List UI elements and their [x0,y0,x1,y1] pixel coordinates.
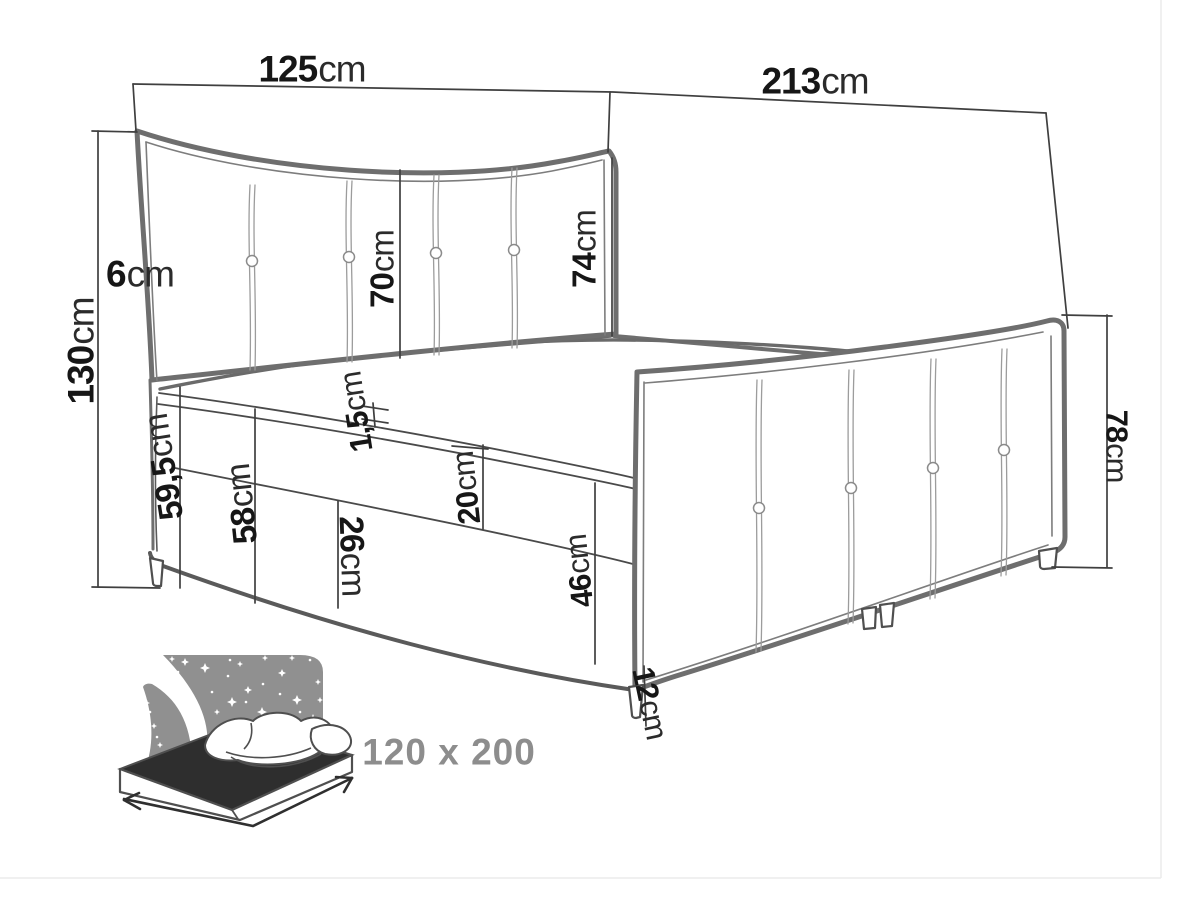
dim-label-bed-length: 213cm [761,63,868,100]
dim-value: 58 [226,506,264,545]
dim-unit: cm [335,552,370,596]
dim-label-headboard-height: 130cm [63,297,100,404]
dim-value: 1,5 [341,410,378,454]
dim-unit: cm [318,51,365,88]
dim-unit: cm [1102,443,1133,482]
dim-label-headboard-inner: 74cm [568,210,601,288]
product-image: 125cm 213cm 130cm 6cm 70cm 74cm 1,5cm 59… [0,0,1198,899]
dim-label-base-side-height: 58cm [221,462,263,545]
dim-unit: cm [634,697,672,742]
dim-label-upper-base-section: 20cm [447,450,485,526]
dim-unit: cm [447,450,482,492]
dim-label-headboard-width: 125cm [258,51,365,88]
dim-unit: cm [127,256,174,293]
dim-label-headboard-panel: 70cm [366,230,399,308]
dim-value: 59,5 [146,456,189,523]
dim-label-headboard-frame: 6cm [106,256,174,293]
dim-unit: cm [821,63,868,100]
dim-value: 6 [106,256,126,293]
dim-unit: cm [560,533,595,575]
dim-unit: cm [334,370,371,414]
dim-value: 78 [1102,410,1133,442]
dim-unit: cm [221,462,259,509]
dim-unit: cm [366,230,399,272]
dim-value: 20 [451,490,485,526]
dim-value: 46 [564,573,598,609]
dim-label-footboard-height: 78cm [1102,410,1133,483]
dim-value: 130 [63,346,100,405]
size-label: 120 x 200 [362,734,536,771]
headboard [137,131,616,549]
dim-value: 213 [761,63,820,100]
size-icon [120,655,352,826]
dim-label-base-front-height: 46cm [560,533,598,609]
dim-value: 12 [627,664,664,702]
dim-unit: cm [63,297,100,344]
dim-label-lower-base-section: 26cm [334,515,371,596]
dim-unit: cm [139,412,179,460]
dim-value: 74 [568,253,601,288]
dim-value: 26 [334,515,369,552]
dim-value: 70 [366,273,399,308]
dim-unit: cm [568,210,601,252]
footboard [635,320,1065,690]
dim-value: 125 [258,51,317,88]
